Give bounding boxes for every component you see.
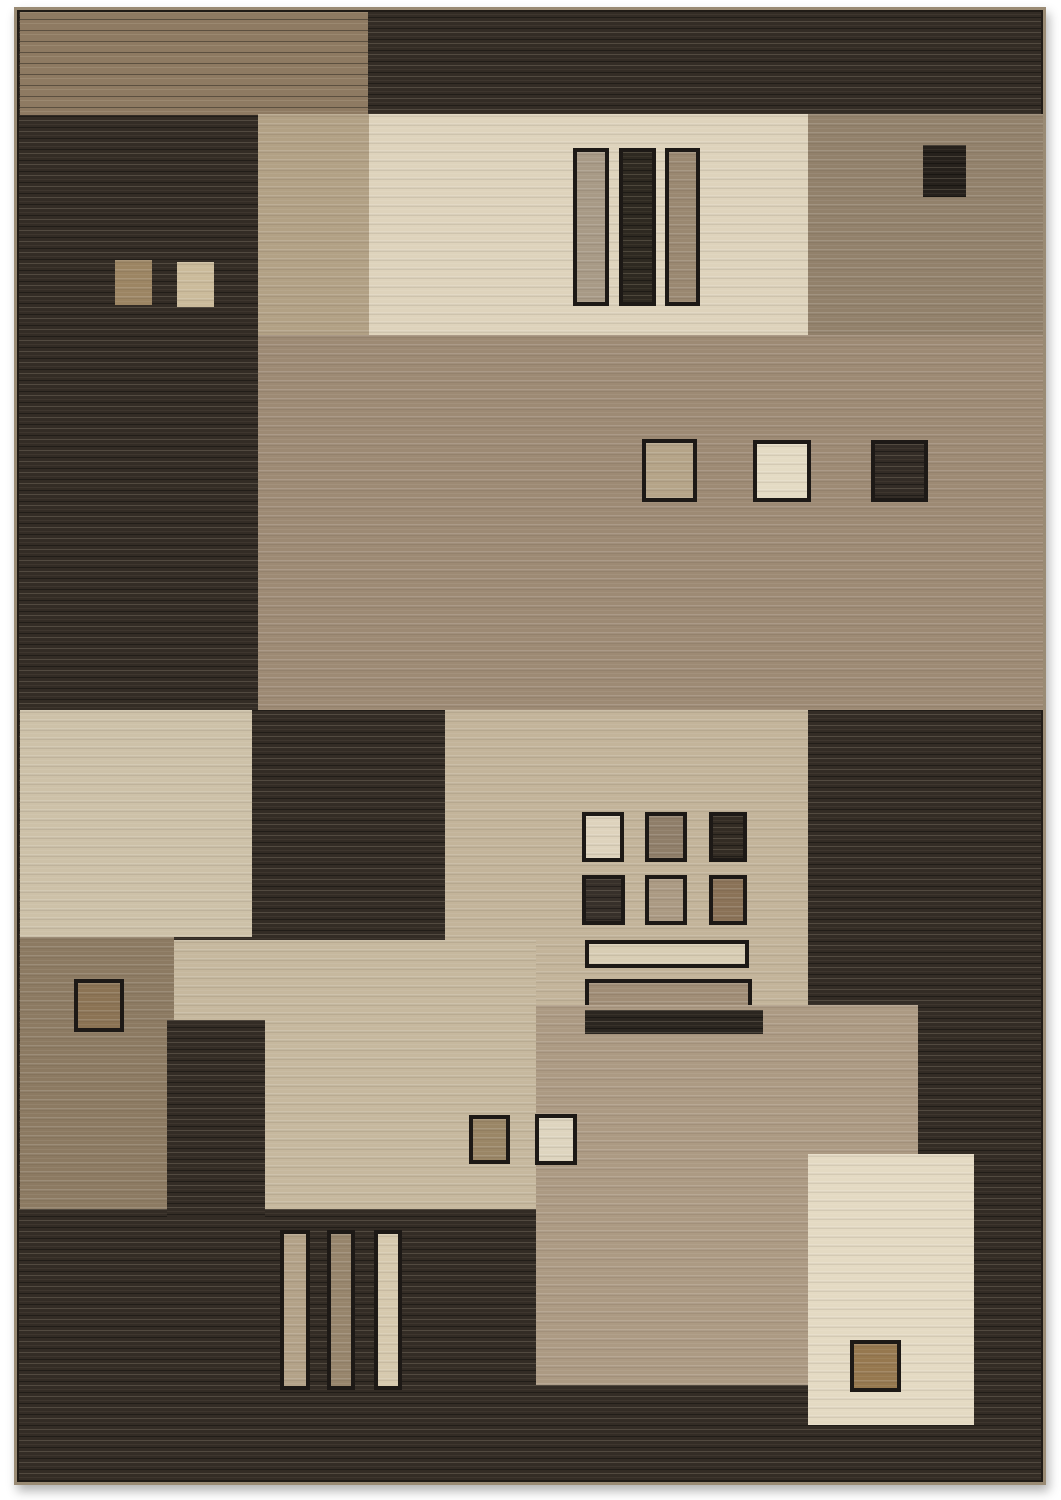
beige-square-bar-dark: [585, 1010, 763, 1034]
bottom-vbar-cream: [374, 1230, 402, 1390]
lower-left-taupe-panel: [20, 937, 174, 1209]
middle-tan-band: [258, 335, 1043, 710]
cream-panel-bar-left: [573, 148, 609, 306]
beige-square-bar-cream: [585, 940, 749, 968]
rug-photo: [14, 7, 1046, 1485]
bottom-vbar-tan: [280, 1230, 310, 1390]
cream-panel-bar-middle: [619, 148, 656, 306]
product-photo-canvas: [0, 0, 1061, 1500]
grid-square-r1-dark: [709, 812, 747, 862]
top-brown-band: [20, 12, 368, 115]
lower-dark-column: [167, 1020, 265, 1217]
left-cream-panel: [20, 710, 252, 937]
tan-band-square-tan: [642, 439, 697, 502]
grid-square-r1-taupe: [645, 812, 687, 862]
dark-field-square-brown: [115, 260, 152, 305]
taupe-panel-dark-square: [923, 145, 966, 197]
taupe-panel-brown-square: [74, 979, 124, 1032]
cream-panel-bar-right: [665, 148, 700, 306]
tan-band-square-cream: [753, 440, 811, 502]
tan-band-square-dark: [871, 440, 928, 502]
pair-square-brown: [469, 1115, 510, 1164]
cream-panel-brown-square: [850, 1340, 901, 1392]
grid-square-r2-dark: [582, 875, 625, 925]
upper-tan-column: [258, 114, 369, 335]
pair-square-cream: [535, 1114, 577, 1165]
bottom-vbar-taupe: [327, 1230, 355, 1390]
grid-square-r2-beige: [645, 875, 687, 925]
grid-square-r1-cream: [582, 812, 624, 862]
grid-square-r2-brown: [709, 875, 747, 925]
dark-field-square-cream: [177, 262, 214, 307]
